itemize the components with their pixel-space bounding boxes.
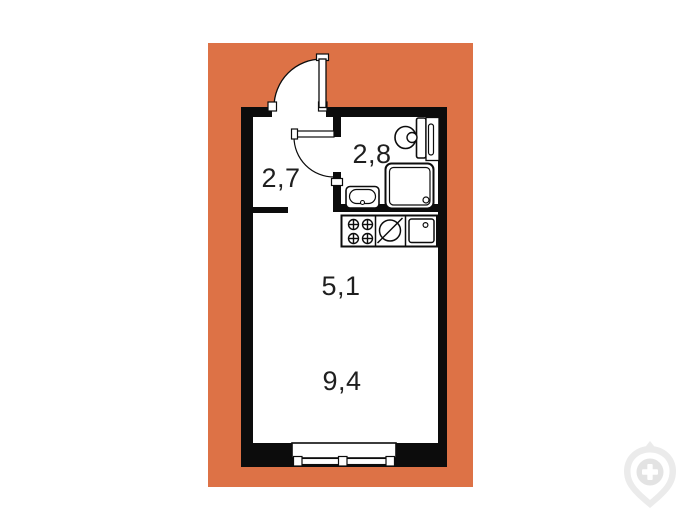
washbasin-icon (346, 187, 379, 209)
hallway-area-label: 2,7 (261, 163, 300, 193)
wall-top-right (326, 107, 447, 117)
floor-plan-page: 2,7 2,8 5,1 9,4 (0, 0, 688, 516)
kitchen-row (342, 216, 438, 247)
bathroom-door-cap (292, 129, 298, 139)
shaft-pipe (429, 124, 434, 155)
wall-hallway-stub (253, 207, 288, 213)
wall-left (241, 107, 253, 467)
washbasin-drain (361, 201, 365, 205)
entry-door-leaf (319, 59, 326, 108)
kitchen-zone-area-label: 5,1 (321, 271, 360, 301)
floor-plan-svg: 2,7 2,8 5,1 9,4 (0, 0, 688, 516)
entry-jamb-left (268, 102, 277, 111)
window-post-middle (339, 457, 348, 467)
window-sill (292, 443, 396, 458)
bathroom-area-label: 2,8 (352, 139, 391, 169)
toilet-cistern (417, 118, 427, 158)
living-zone-area-label: 9,4 (322, 366, 361, 396)
bathroom-door-leaf (294, 131, 334, 137)
developer-logo-icon (624, 441, 676, 508)
plumbing-shaft-icon (426, 118, 439, 161)
window-post-left (294, 457, 303, 467)
counter-unit-icon (409, 219, 434, 243)
bathroom-jamb (332, 179, 343, 186)
window (292, 443, 396, 466)
shower-drain (423, 197, 429, 203)
shower-icon (386, 164, 434, 209)
toilet-bowl-inner (407, 133, 417, 143)
window-post-right (386, 457, 395, 467)
